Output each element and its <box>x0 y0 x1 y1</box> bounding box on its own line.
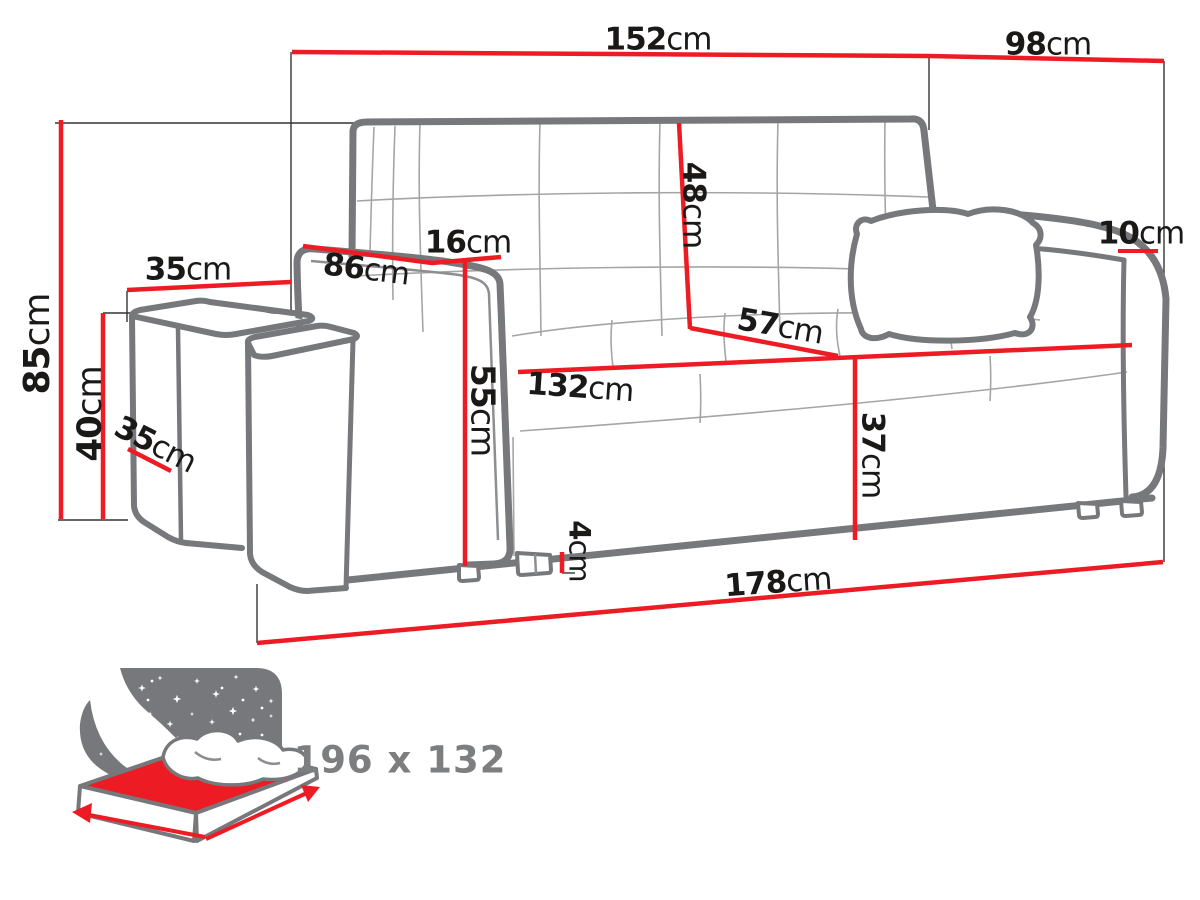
dim-label-seat-width: 132cm <box>526 369 635 407</box>
duvet <box>163 731 307 785</box>
dim-label-front-width: 178cm <box>724 564 833 602</box>
dim-value: 40 <box>73 416 107 461</box>
dim-label-backrest-height: 48cm <box>678 162 709 248</box>
dim-unit: cm <box>678 203 709 248</box>
sofa-dimension-diagram: 152cm 98cm 85cm 40cm 35cm 35cm 86cm 16cm… <box>0 0 1200 900</box>
dim-label-armrest-height: 55cm <box>467 364 500 456</box>
dim-value: 10 <box>1098 219 1139 250</box>
dim-value: 152 <box>605 25 667 56</box>
dim-unit: cm <box>785 564 832 598</box>
dim-unit: cm <box>1139 219 1184 250</box>
dim-label-total-depth: 98cm <box>1005 30 1091 61</box>
dim-unit: cm <box>73 366 107 416</box>
dim-unit: cm <box>775 311 825 349</box>
dim-value: 98 <box>1005 30 1046 61</box>
dim-value: 85 <box>20 346 56 394</box>
dim-label-armrest-width: 16cm <box>425 228 511 259</box>
dim-unit: cm <box>587 373 634 407</box>
dim-unit: cm <box>20 294 56 347</box>
dim-label-foot-height: 4cm <box>565 520 594 581</box>
dim-label-pouf-width: 35cm <box>145 255 231 286</box>
dim-unit: cm <box>565 539 594 581</box>
dim-value: 178 <box>724 567 788 602</box>
dim-unit: cm <box>467 408 500 456</box>
dim-value: 35 <box>145 255 186 286</box>
dim-unit: cm <box>362 254 411 290</box>
dim-unit: cm <box>857 453 888 498</box>
sleeping-area-size: 196 x 132 <box>293 742 506 779</box>
dim-value: 132 <box>526 369 590 404</box>
dim-label-seat-height: 37cm <box>857 412 888 498</box>
dim-value: 4 <box>565 520 594 539</box>
dim-label-total-width: 152cm <box>605 25 712 56</box>
dim-unit: cm <box>666 25 711 56</box>
dim-label-pouf-height: 40cm <box>73 366 107 461</box>
dim-label-armrest-top-drop: 10cm <box>1098 219 1184 250</box>
pillow <box>851 209 1041 340</box>
dim-unit: cm <box>466 228 511 259</box>
dim-value: 55 <box>467 364 500 408</box>
dim-label-total-height: 85cm <box>20 294 56 395</box>
dim-unit: cm <box>1046 30 1091 61</box>
dim-value: 37 <box>857 412 888 453</box>
dim-value: 16 <box>425 228 466 259</box>
dim-unit: cm <box>186 255 231 286</box>
dim-value: 86 <box>321 249 366 285</box>
dim-value: 57 <box>735 304 781 342</box>
dim-value: 48 <box>678 162 709 203</box>
